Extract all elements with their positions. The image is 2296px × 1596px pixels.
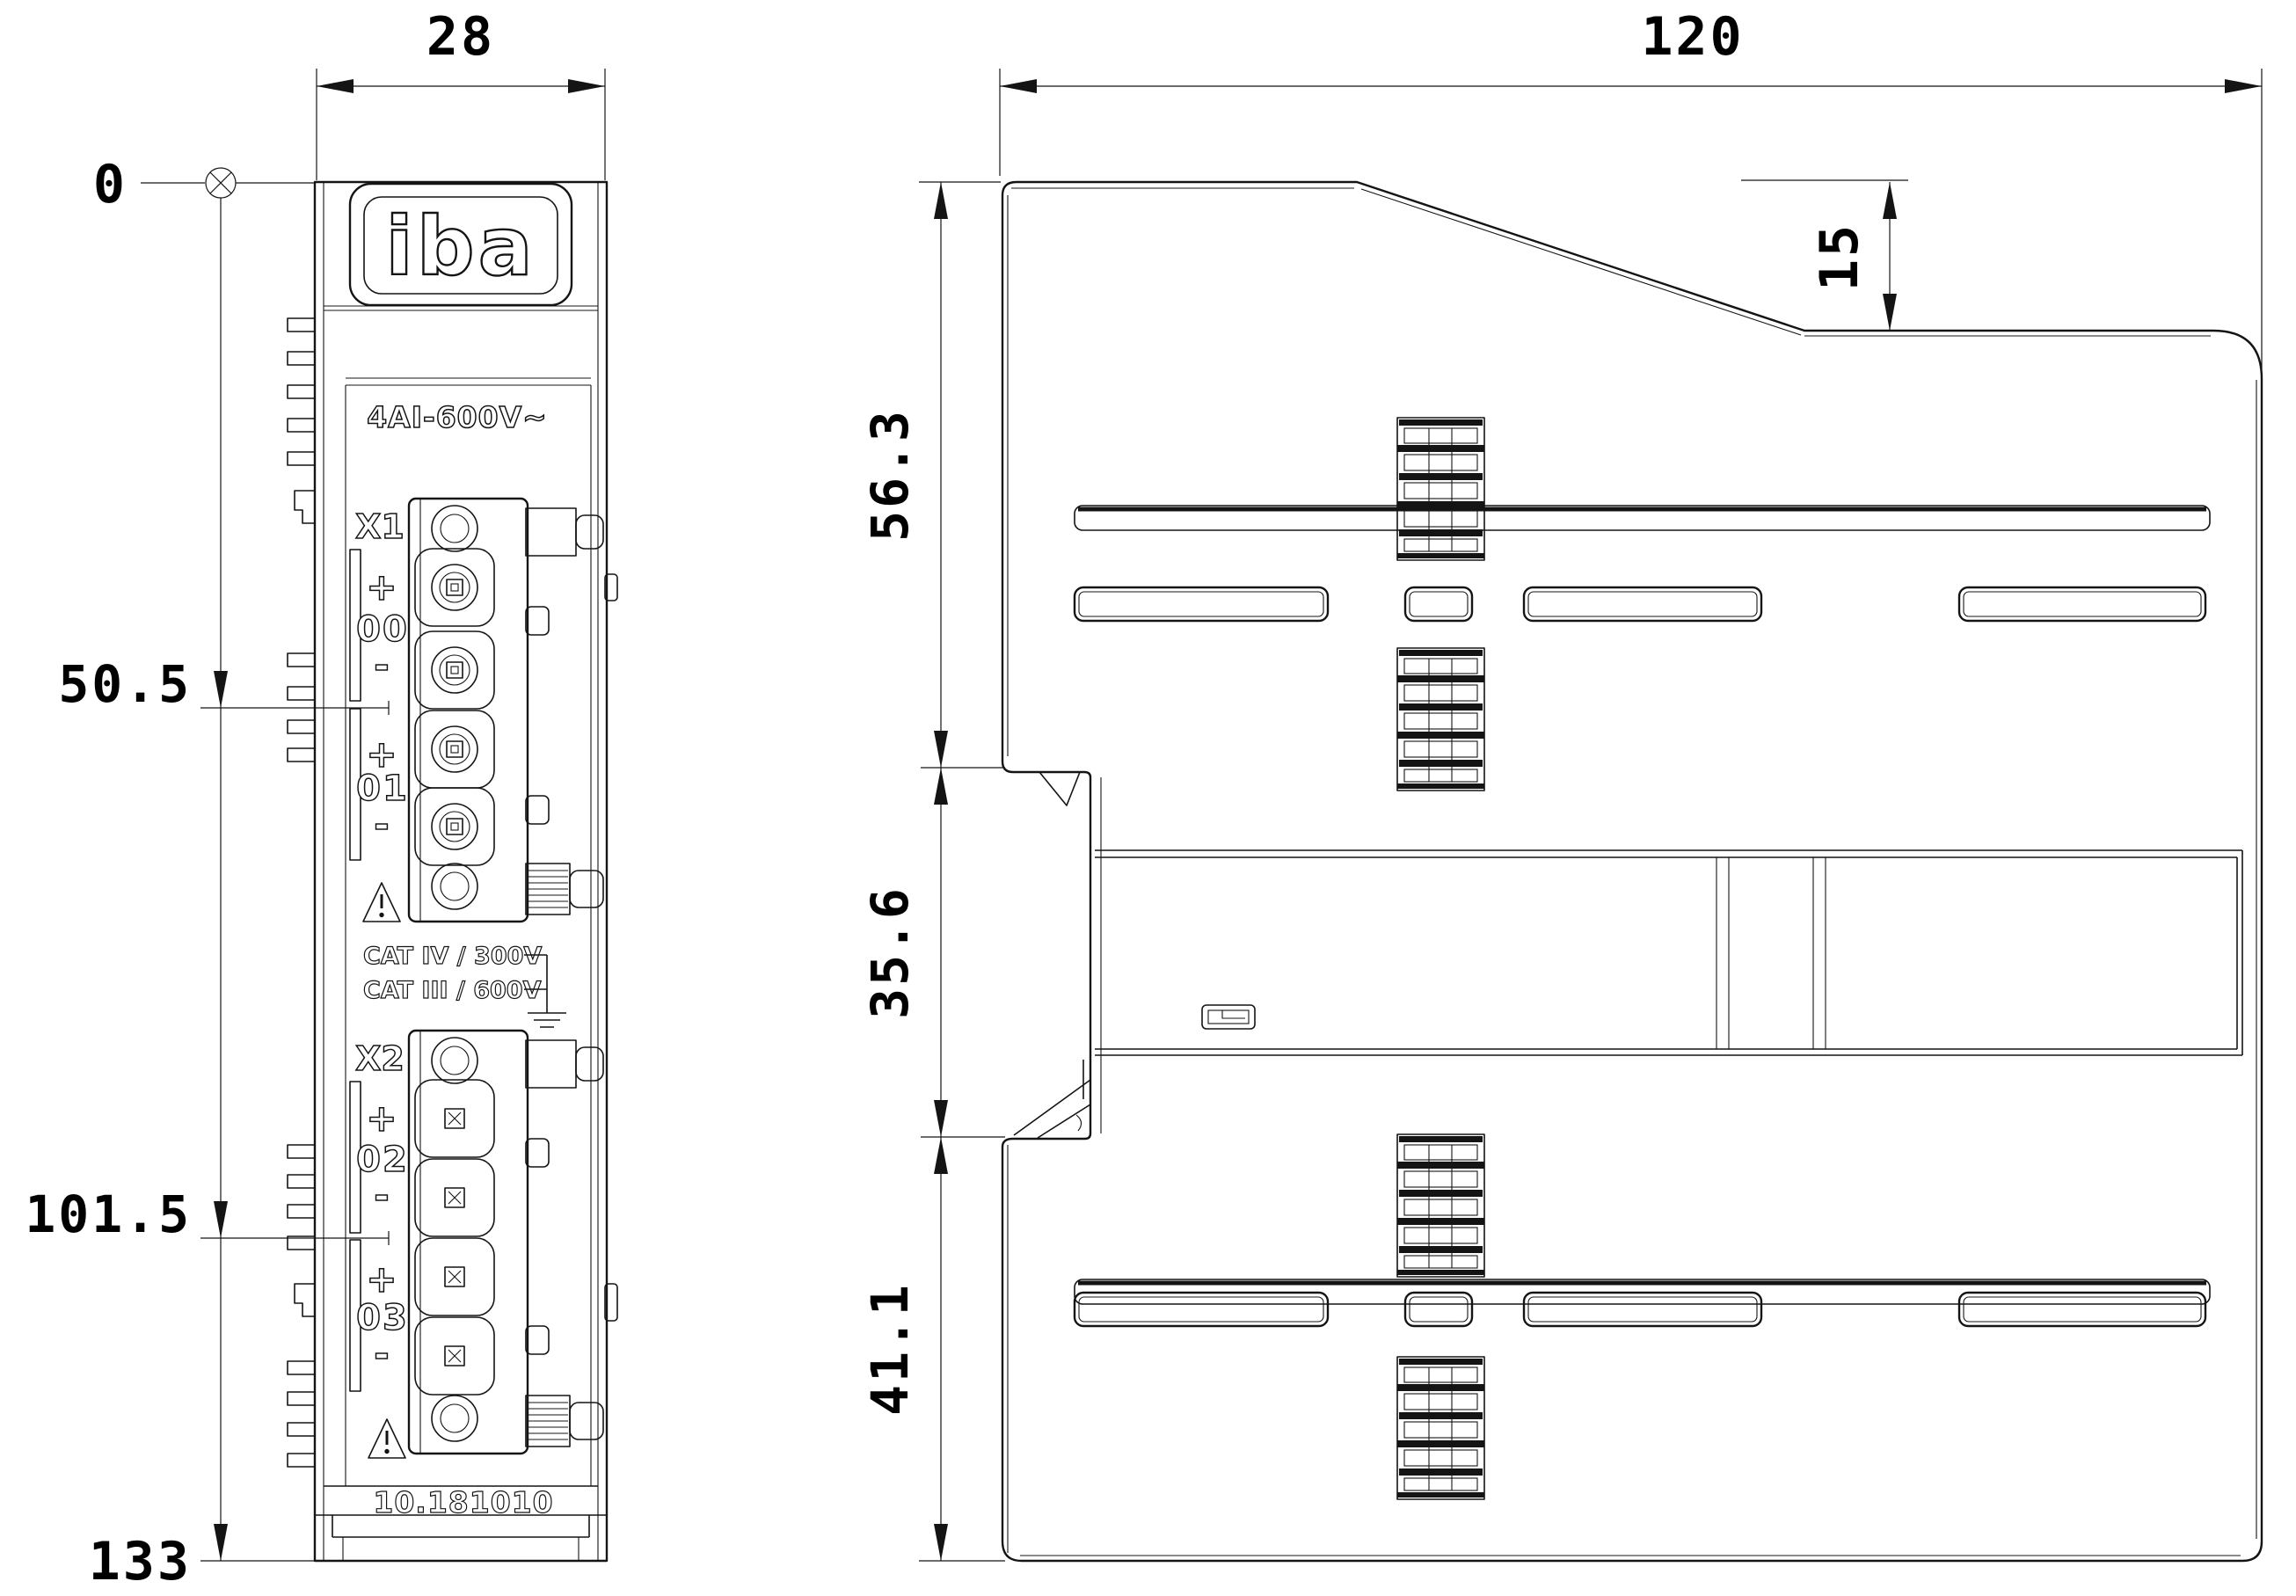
- rating-line2: CAT III / 600V: [363, 977, 542, 1004]
- dim-top-56-3: 56.3: [860, 182, 1005, 768]
- warning-triangle-icon: [368, 1419, 405, 1458]
- technical-drawing: iba 4AI-600V~ X1: [0, 0, 2296, 1596]
- x2-ch03-minus: -: [374, 1332, 390, 1375]
- din-rail-band: [1095, 777, 2242, 1133]
- model-label: 4AI-600V~: [367, 400, 548, 434]
- brand-logo-plate: iba: [350, 184, 572, 305]
- dim-text-101-5: 101.5: [25, 1184, 192, 1244]
- vent-grille: [1397, 1357, 1484, 1499]
- latch-clip-handle: [1202, 1005, 1255, 1029]
- din-catch-top: [1039, 772, 1080, 805]
- dim-text-28: 28: [426, 6, 495, 68]
- side-view: [1002, 182, 2262, 1561]
- connector-x2-label: X2: [355, 1039, 405, 1078]
- vent-grille: [1397, 1134, 1484, 1277]
- dim-text-133: 133: [89, 1531, 192, 1592]
- dim-bottom-41-1: 41.1: [860, 1137, 1005, 1561]
- dim-x1-50-5: 50.5: [58, 654, 389, 715]
- warning-triangle-icon: [363, 883, 400, 922]
- knurled-screw-x2: [528, 1403, 568, 1439]
- part-number: 10.181010: [373, 1485, 553, 1519]
- side-dimensions: 120 15 56.3 35.6 41.1: [860, 6, 2262, 1561]
- rating-line1: CAT IV / 300V: [363, 943, 542, 970]
- x2-ch02-plus: +: [366, 1097, 398, 1140]
- dim-text-0: 0: [93, 154, 128, 215]
- dim-width-28: 28: [317, 6, 605, 180]
- connector-x2: X2 + 02 - + 03 -: [355, 1031, 603, 1454]
- connector-x1-label: X1: [355, 507, 405, 546]
- dim-step-15: 15: [1741, 180, 1908, 331]
- vent-grille: [1397, 648, 1484, 791]
- knurled-screw-x1: [528, 871, 568, 907]
- x1-ch00-minus: -: [374, 644, 390, 687]
- dim-origin-0: 0: [93, 154, 315, 1561]
- slot-row-bottom: [1075, 1293, 2205, 1326]
- ratings-block: CAT IV / 300V CAT III / 600V: [363, 943, 566, 1027]
- side-body-outline: [1002, 182, 2262, 1561]
- grip-ledge-top: [1075, 506, 2210, 530]
- left-hook-top: [295, 491, 315, 523]
- dim-text-56-3: 56.3: [860, 408, 920, 542]
- dim-text-15: 15: [1809, 222, 1870, 291]
- dim-text-35-6: 35.6: [860, 885, 920, 1019]
- connector-x1: X1 + 00 - + 01 -: [355, 499, 603, 922]
- x2-ch02-minus: -: [374, 1174, 390, 1217]
- dim-x2-101-5: 101.5: [25, 1184, 389, 1245]
- dim-text-120: 120: [1641, 6, 1744, 68]
- din-latch-bottom: [1014, 1060, 1090, 1138]
- x1-ch01-minus: -: [374, 803, 390, 846]
- front-view: iba 4AI-600V~ X1: [288, 182, 617, 1561]
- front-body-outline: [315, 182, 607, 1561]
- slot-row-top: [1075, 587, 2205, 621]
- vent-grille: [1397, 418, 1484, 560]
- dim-text-41-1: 41.1: [860, 1282, 920, 1416]
- x1-ch00-plus: +: [366, 565, 398, 609]
- left-hook-bottom: [295, 1284, 315, 1316]
- datum-origin-icon: [206, 168, 236, 198]
- x2-ch03-plus: +: [366, 1257, 398, 1301]
- brand-logo-text: iba: [385, 200, 536, 294]
- engineering-drawing-page: iba 4AI-600V~ X1: [0, 0, 2296, 1596]
- dim-mid-35-6: 35.6: [860, 768, 1005, 1137]
- dim-text-50-5: 50.5: [58, 654, 192, 714]
- dim-total-133: 133: [89, 1524, 317, 1592]
